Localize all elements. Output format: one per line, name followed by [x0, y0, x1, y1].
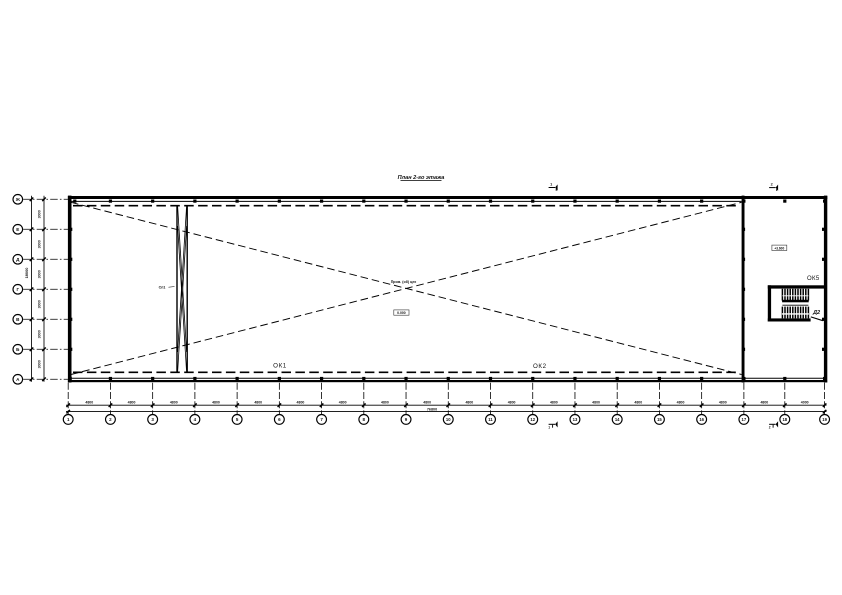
svg-text:13: 13 — [573, 417, 578, 422]
svg-text:15: 15 — [657, 417, 662, 422]
svg-text:4800: 4800 — [508, 400, 516, 404]
svg-text:Е: Е — [16, 227, 19, 232]
svg-text:4800: 4800 — [85, 400, 93, 404]
svg-text:16: 16 — [699, 417, 704, 422]
svg-text:Д2: Д2 — [812, 310, 821, 316]
svg-text:4800: 4800 — [634, 400, 642, 404]
svg-text:76800: 76800 — [427, 407, 437, 411]
svg-text:14: 14 — [615, 417, 620, 422]
svg-text:Сп1: Сп1 — [159, 285, 166, 289]
svg-text:4800: 4800 — [423, 400, 431, 404]
svg-text:3000: 3000 — [38, 240, 42, 248]
svg-text:11: 11 — [488, 417, 493, 422]
svg-text:4800: 4800 — [760, 400, 768, 404]
svg-text:4800: 4800 — [297, 400, 305, 404]
svg-text:2: 2 — [769, 425, 771, 429]
svg-text:3000: 3000 — [38, 330, 42, 338]
svg-text:10: 10 — [446, 417, 451, 422]
svg-text:4800: 4800 — [677, 400, 685, 404]
svg-text:12: 12 — [530, 417, 535, 422]
svg-text:3000: 3000 — [38, 270, 42, 278]
svg-text:18: 18 — [782, 417, 787, 422]
svg-text:4800: 4800 — [465, 400, 473, 404]
svg-text:4800: 4800 — [128, 400, 136, 404]
svg-text:4800: 4800 — [212, 400, 220, 404]
svg-text:1: 1 — [548, 425, 550, 429]
svg-text:Г: Г — [16, 287, 19, 292]
svg-text:ОК2: ОК2 — [533, 363, 547, 370]
svg-text:4800: 4800 — [550, 400, 558, 404]
svg-text:17: 17 — [742, 417, 747, 422]
svg-text:ОК5: ОК5 — [807, 276, 820, 282]
svg-text:1: 1 — [550, 183, 552, 187]
svg-text:4800: 4800 — [254, 400, 262, 404]
svg-text:ОК1: ОК1 — [273, 363, 287, 370]
svg-text:4800: 4800 — [339, 400, 347, 404]
svg-text:4800: 4800 — [592, 400, 600, 404]
svg-text:0.000: 0.000 — [397, 311, 406, 315]
svg-text:4000: 4000 — [801, 400, 809, 404]
svg-text:Ж: Ж — [15, 197, 21, 202]
svg-text:4800: 4800 — [170, 400, 178, 404]
svg-text:18000: 18000 — [24, 268, 29, 279]
svg-text:Пром. (об) цех: Пром. (об) цех — [391, 280, 417, 284]
svg-text:3000: 3000 — [38, 210, 42, 218]
svg-text:2: 2 — [771, 183, 773, 187]
svg-text:+3.600: +3.600 — [774, 246, 784, 250]
svg-text:19: 19 — [822, 417, 827, 422]
svg-text:3000: 3000 — [38, 300, 42, 308]
svg-text:3000: 3000 — [38, 360, 42, 368]
svg-text:4800: 4800 — [381, 400, 389, 404]
svg-text:4800: 4800 — [719, 400, 727, 404]
